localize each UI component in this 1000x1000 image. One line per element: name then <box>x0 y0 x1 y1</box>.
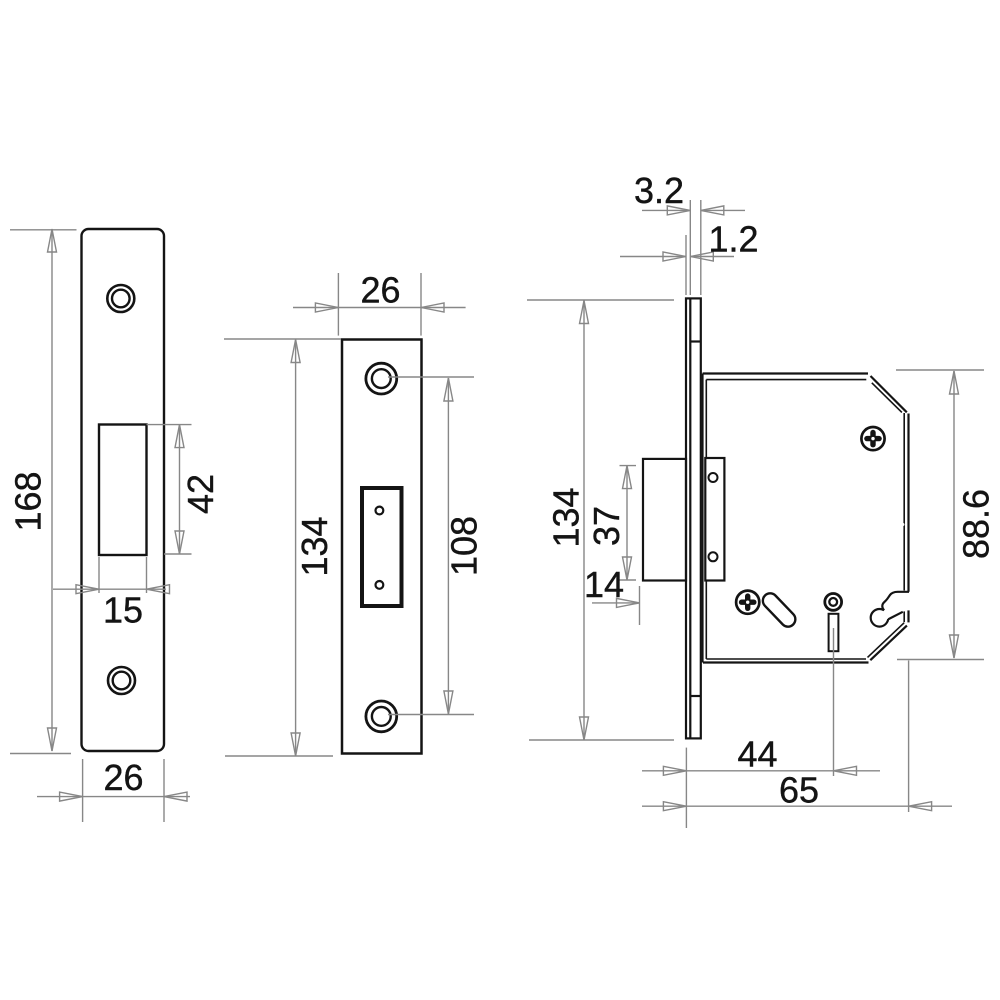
svg-text:168: 168 <box>8 471 49 531</box>
svg-text:88.6: 88.6 <box>956 489 997 559</box>
svg-text:26: 26 <box>103 757 143 798</box>
svg-text:26: 26 <box>360 270 400 311</box>
svg-text:108: 108 <box>444 516 485 576</box>
svg-text:42: 42 <box>180 474 221 514</box>
svg-text:44: 44 <box>737 734 777 775</box>
svg-text:15: 15 <box>103 590 143 631</box>
svg-text:14: 14 <box>584 564 624 605</box>
svg-text:65: 65 <box>779 770 819 811</box>
svg-text:37: 37 <box>586 506 627 546</box>
svg-text:3.2: 3.2 <box>634 170 684 211</box>
svg-text:134: 134 <box>294 516 335 576</box>
svg-text:1.2: 1.2 <box>708 219 758 260</box>
svg-text:134: 134 <box>546 487 587 547</box>
